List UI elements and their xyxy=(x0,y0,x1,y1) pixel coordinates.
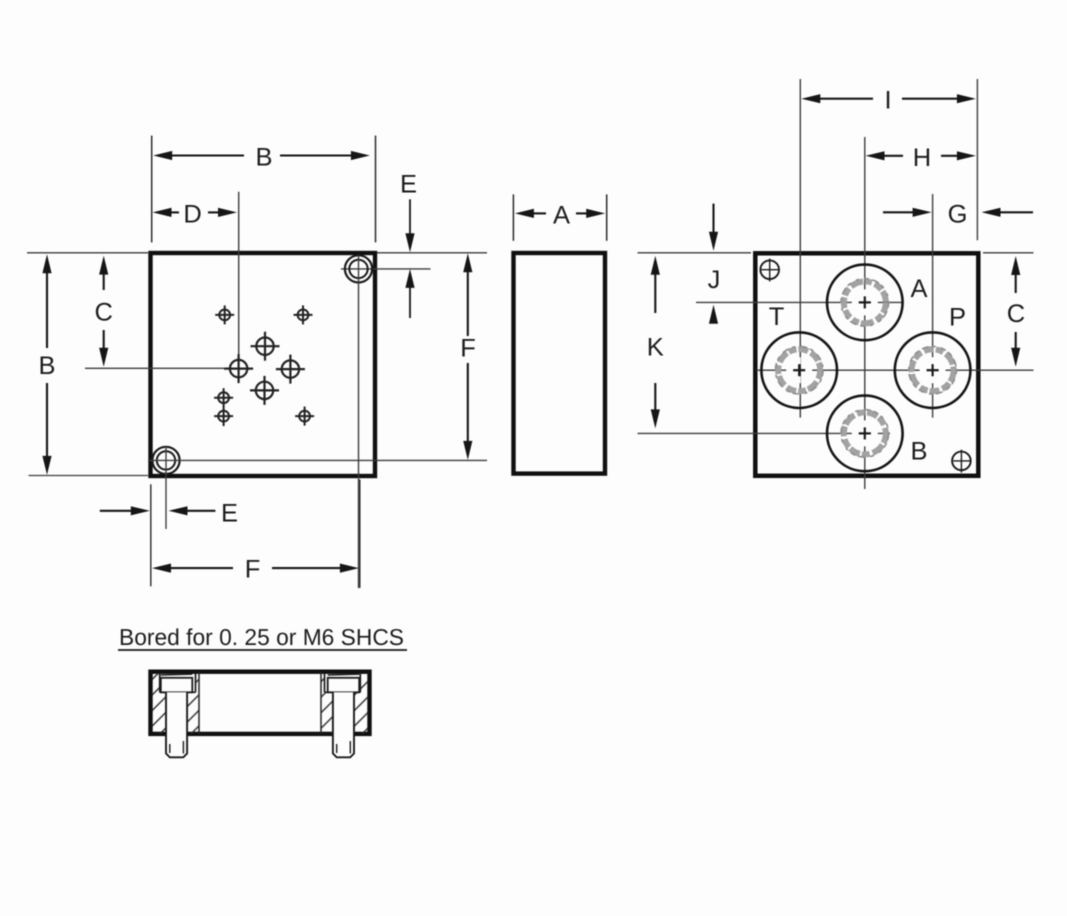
svg-text:B: B xyxy=(38,352,55,380)
svg-text:T: T xyxy=(769,303,785,331)
svg-text:F: F xyxy=(245,556,261,584)
svg-text:E: E xyxy=(221,500,238,528)
svg-text:B: B xyxy=(255,143,272,171)
svg-text:K: K xyxy=(647,334,664,362)
svg-text:B: B xyxy=(910,438,927,466)
svg-text:H: H xyxy=(913,144,931,172)
svg-text:A: A xyxy=(553,202,570,230)
svg-text:F: F xyxy=(460,335,476,363)
svg-text:E: E xyxy=(400,171,417,199)
svg-text:A: A xyxy=(910,275,927,303)
svg-text:C: C xyxy=(94,299,112,327)
svg-text:J: J xyxy=(708,266,721,294)
svg-text:D: D xyxy=(183,201,201,229)
svg-text:P: P xyxy=(949,304,966,332)
svg-text:C: C xyxy=(1007,300,1025,328)
svg-text:I: I xyxy=(884,87,891,115)
svg-text:G: G xyxy=(948,200,968,228)
svg-text:Bored for 0. 25 or M6 SHCS: Bored for 0. 25 or M6 SHCS xyxy=(119,624,404,650)
